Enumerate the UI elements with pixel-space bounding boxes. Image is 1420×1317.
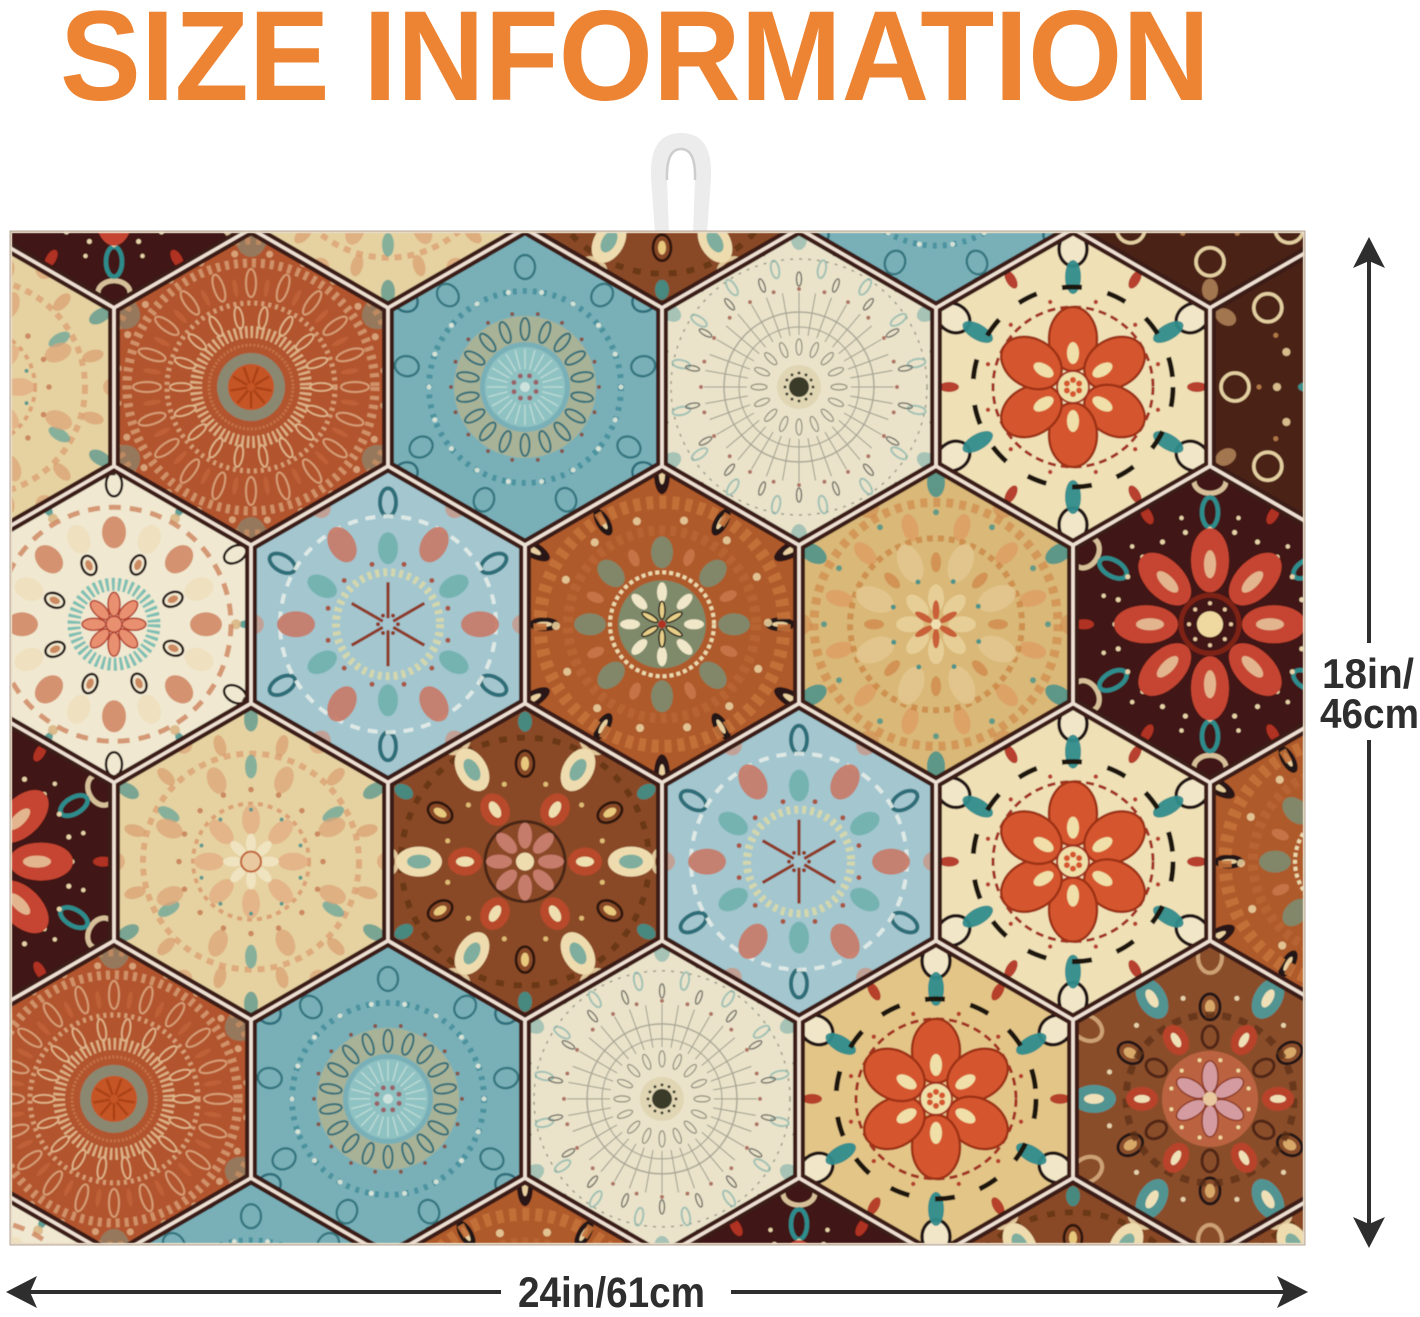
svg-text:24in/61cm: 24in/61cm — [518, 1269, 705, 1312]
svg-text:46cm: 46cm — [1320, 690, 1419, 737]
svg-text:SIZE INFORMATION: SIZE INFORMATION — [60, 0, 1210, 128]
